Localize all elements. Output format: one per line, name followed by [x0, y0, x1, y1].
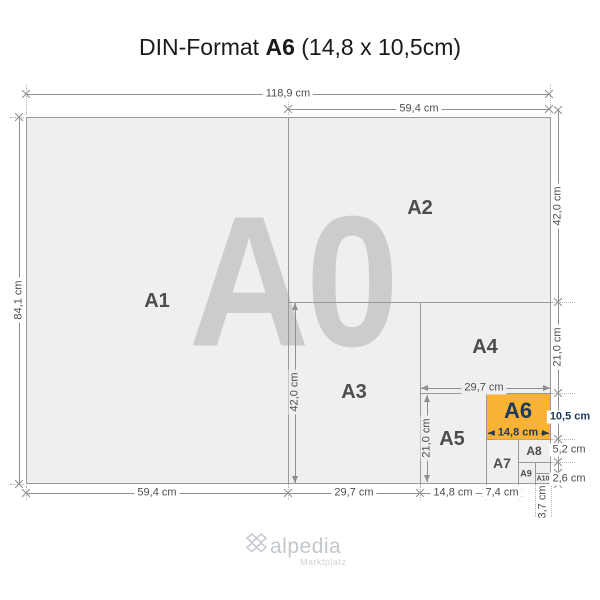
dim-label-a3-width: 29,7 cm — [331, 487, 376, 500]
dim-label-a6-height: 10,5 cm — [547, 411, 593, 424]
arrow-down-icon — [424, 475, 430, 482]
extension-line — [551, 486, 552, 517]
a1-label: A1 — [144, 291, 170, 311]
dim-tick — [416, 489, 425, 498]
dim-tick — [554, 106, 563, 115]
dim-tick — [554, 435, 563, 444]
dim-tick — [545, 105, 554, 114]
dim-label-total-width: 118,9 cm — [263, 88, 313, 101]
dim-tick — [284, 489, 293, 498]
dim-label-a9-width: 3,7 cm — [537, 482, 550, 521]
dim-tick — [554, 458, 563, 467]
dim-label-a2-width: 59,4 cm — [396, 103, 441, 116]
alpedia-logo-tagline: Marktplatz — [300, 557, 347, 567]
a4-label: A4 — [472, 337, 498, 357]
title-size: (14,8 x 10,5cm) — [295, 34, 461, 60]
dim-label-a2-height: 42,0 cm — [552, 183, 565, 228]
arrow-up-icon — [292, 303, 298, 310]
a10-label: A10 — [537, 476, 550, 483]
title-format-code: A6 — [265, 34, 294, 60]
dim-label-a5-height: 21,0 cm — [421, 415, 434, 460]
alpedia-logo-text: alpedia — [270, 536, 341, 557]
a9-label: A9 — [520, 470, 532, 479]
dim-tick — [554, 389, 563, 398]
arrow-down-icon — [292, 476, 298, 483]
arrow-left-icon — [421, 385, 428, 391]
dim-label-a10-height: 2,6 cm — [549, 473, 588, 486]
dim-tick — [554, 298, 563, 307]
dim-label-a5-width: 14,8 cm — [430, 487, 475, 500]
dim-tick — [545, 90, 554, 99]
a7-label: A7 — [493, 456, 511, 470]
a5-label: A5 — [439, 429, 465, 449]
arrow-right-icon — [543, 385, 550, 391]
dim-tick — [22, 90, 31, 99]
page-title: DIN-Format A6 (14,8 x 10,5cm) — [0, 34, 600, 61]
dim-label-a1-width: 59,4 cm — [134, 487, 179, 500]
din-format-diagram: DIN-Format A6 (14,8 x 10,5cm) A0 A1 A2 A… — [0, 0, 600, 600]
dim-tick — [22, 489, 31, 498]
a2-label: A2 — [407, 198, 433, 218]
arrow-right-icon — [542, 430, 549, 436]
arrow-up-icon — [424, 395, 430, 402]
a3-label: A3 — [341, 382, 367, 402]
alpedia-logo: alpedia Marktplatz — [246, 533, 341, 557]
dim-label-a4-height: 21,0 cm — [552, 324, 565, 369]
dim-tick — [284, 105, 293, 114]
dim-label-a7-width: 7,4 cm — [482, 487, 521, 500]
a8-label: A8 — [526, 445, 541, 457]
dim-tick — [15, 113, 24, 122]
a6-label: A6 — [504, 400, 532, 422]
dim-label-a6-width: 14,8 cm — [495, 427, 541, 440]
dim-tick — [15, 480, 24, 489]
alpedia-logo-icon — [246, 533, 267, 553]
dim-label-a8-height: 5,2 cm — [549, 444, 588, 457]
dim-label-a3-height: 42,0 cm — [289, 369, 302, 414]
title-prefix: DIN-Format — [139, 34, 266, 60]
a1-a2-divider — [288, 117, 289, 485]
dim-label-a4-width: 29,7 cm — [461, 382, 506, 395]
dim-label-total-height: 84,1 cm — [13, 277, 26, 322]
